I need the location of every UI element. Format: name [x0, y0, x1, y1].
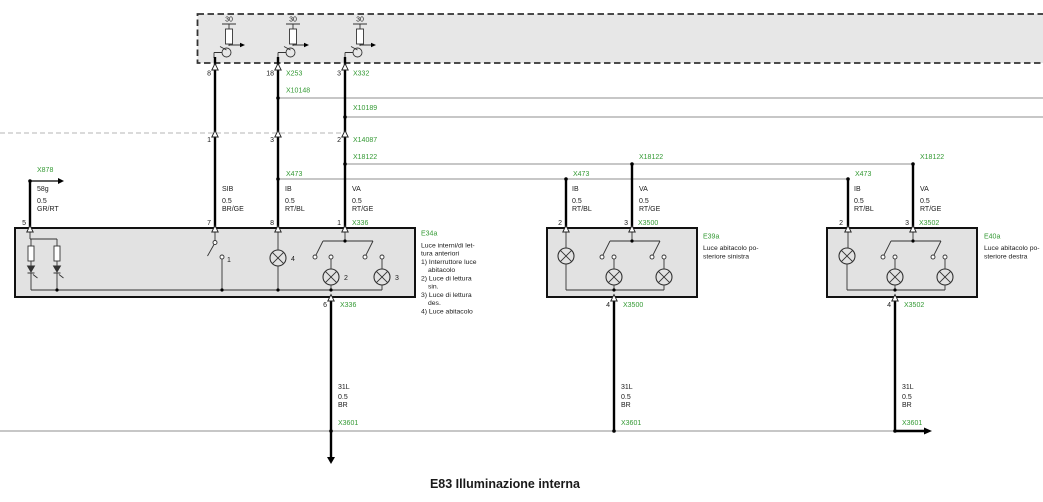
connector-label-x18122-3: X18122: [920, 154, 944, 161]
component-id-e34a: E34a: [421, 231, 437, 238]
e34a-pin-6: 6: [323, 302, 327, 309]
circuit-va: VA: [639, 186, 648, 193]
e34a-desc-line: sin.: [428, 284, 439, 291]
color-ib: RT/BL: [854, 206, 874, 213]
e40a-desc-line: steriore destra: [984, 253, 1028, 260]
e34a-pin-1: 1: [337, 220, 341, 227]
color-va: RT/GE: [639, 206, 661, 213]
fuse-1-rating: 30: [225, 17, 233, 24]
gauge-31l: 0.5: [902, 394, 912, 401]
connector-label-x10189: X10189: [353, 105, 377, 112]
connector-label-x3502-bottom: X3502: [904, 302, 924, 309]
color-31l: BR: [338, 402, 348, 409]
wire-label-58g: 58g 0.5 GR/RT: [37, 186, 59, 213]
component-id-e39a: E39a: [703, 234, 719, 241]
component-e40a-box: [827, 228, 977, 297]
circuit-ib: IB: [854, 186, 861, 193]
component-e34a-box: 1 4 2: [15, 228, 415, 297]
e40a-pin-2: 2: [839, 220, 843, 227]
connector-label-x332: X332: [353, 71, 369, 78]
e34a-desc-line: 3) Luce di lettura: [421, 292, 472, 299]
connector-label-x3500-bottom: X3500: [623, 302, 643, 309]
lamp-3-number: 3: [395, 275, 399, 282]
circuit-va: VA: [920, 186, 929, 193]
circuit-sib: SIB: [222, 186, 234, 193]
wire-label-ib-rear-right: IB 0.5 RT/BL: [854, 186, 874, 213]
color-ib: RT/BL: [572, 206, 592, 213]
gauge-58g: 0.5: [37, 198, 47, 205]
connector-label-x878: X878: [37, 167, 53, 174]
arrow-right-icon: [924, 428, 932, 435]
supply-box-outline: [198, 14, 1043, 63]
wire-label-ib-rear-left: IB 0.5 RT/BL: [572, 186, 592, 213]
e40a-pin-4: 4: [887, 302, 891, 309]
circuit-ib: IB: [285, 186, 292, 193]
e34a-pin-7: 7: [207, 220, 211, 227]
wire-label-ground-3: 31L 0.5 BR X3601: [902, 384, 922, 427]
lamp-2-number: 2: [344, 275, 348, 282]
circuit-31l: 31L: [338, 384, 350, 391]
fuse-3-rating: 30: [356, 17, 364, 24]
e34a-desc-line: Luce interni/di let-: [421, 243, 475, 250]
e39a-desc-line: steriore sinistra: [703, 253, 749, 260]
fuse-3-pin: 3: [337, 71, 341, 78]
component-e39a-box: [547, 228, 697, 297]
fuse-2-pin: 18: [266, 71, 274, 78]
connector-label-x473-3: X473: [855, 171, 871, 178]
circuit-31l: 31L: [621, 384, 633, 391]
e34a-legend: E34a Luce interni/di let- tura anteriori…: [421, 231, 477, 316]
e39a-desc-line: Luce abitacolo po-: [703, 245, 759, 252]
connector-label-x336-top: X336: [352, 220, 368, 227]
connector-label-x3601-3: X3601: [902, 420, 922, 427]
color-31l: BR: [902, 402, 912, 409]
crossing-pin-3: 2: [337, 137, 341, 144]
gauge-31l: 0.5: [621, 394, 631, 401]
component-id-e40a: E40a: [984, 234, 1000, 241]
connector-label-x18122-1: X18122: [353, 154, 377, 161]
wire-label-ib-front: IB 0.5 RT/BL: [285, 186, 305, 213]
e40a-pin-3: 3: [905, 220, 909, 227]
supply-box: 30 30 30: [198, 14, 1043, 63]
gauge-ib: 0.5: [854, 198, 864, 205]
gauge-31l: 0.5: [338, 394, 348, 401]
e34a-desc-line: 4) Luce abitacolo: [421, 308, 473, 315]
circuit-va: VA: [352, 186, 361, 193]
wire-label-va-rear-left: VA 0.5 RT/GE: [639, 186, 661, 213]
wire-label-ground-1: 31L 0.5 BR X3601: [338, 384, 358, 427]
wire-label-va-front: VA 0.5 RT/GE: [352, 186, 374, 213]
e34a-desc-line: abitacolo: [428, 267, 455, 274]
connector-label-x3500-top: X3500: [638, 220, 658, 227]
connector-label-x18122-2: X18122: [639, 154, 663, 161]
connector-label-x473-1: X473: [286, 171, 302, 178]
wiring-diagram-canvas: 30 30 30: [0, 0, 1043, 502]
connector-label-x14087: X14087: [353, 137, 377, 144]
connector-label-x3601-1: X3601: [338, 420, 358, 427]
e40a-legend: E40a Luce abitacolo po- steriore destra: [984, 234, 1040, 261]
circuit-58g: 58g: [37, 186, 49, 193]
page-title: E83 Illuminazione interna: [430, 477, 581, 491]
e39a-pin-3: 3: [624, 220, 628, 227]
connector-label-x3502-top: X3502: [919, 220, 939, 227]
color-31l: BR: [621, 402, 631, 409]
circuit-31l: 31L: [902, 384, 914, 391]
e40a-desc-line: Luce abitacolo po-: [984, 245, 1040, 252]
wire-label-sib: SIB 0.5 BR/GE: [222, 186, 244, 213]
fuse-2-rating: 30: [289, 17, 297, 24]
lamp-4-number: 4: [291, 256, 295, 263]
e34a-desc-line: 2) Luce di lettura: [421, 276, 472, 283]
e39a-legend: E39a Luce abitacolo po- steriore sinistr…: [703, 234, 759, 261]
e34a-desc-line: tura anteriori: [421, 251, 460, 258]
connector-label-x3601-2: X3601: [621, 420, 641, 427]
gauge-va: 0.5: [352, 198, 362, 205]
connector-label-x253: X253: [286, 71, 302, 78]
wiring-diagram-page: 30 30 30: [0, 0, 1043, 502]
e34a-desc-line: 1) Interruttore luce: [421, 259, 477, 266]
connector-label-x10148: X10148: [286, 88, 310, 95]
crossing-pin-1: 1: [207, 137, 211, 144]
gauge-sib: 0.5: [222, 198, 232, 205]
e39a-pin-2: 2: [558, 220, 562, 227]
fuse-1-pin: 8: [207, 71, 211, 78]
ground-icon: [327, 457, 335, 464]
circuit-ib: IB: [572, 186, 579, 193]
e34a-desc-line: des.: [428, 300, 441, 307]
e34a-pin-5: 5: [22, 220, 26, 227]
gauge-ib: 0.5: [572, 198, 582, 205]
e34a-pin-8: 8: [270, 220, 274, 227]
e39a-pin-4: 4: [606, 302, 610, 309]
arrow-right-icon: [58, 178, 64, 184]
gauge-va: 0.5: [920, 198, 930, 205]
switch-1-number: 1: [227, 257, 231, 264]
color-sib: BR/GE: [222, 206, 244, 213]
gauge-ib: 0.5: [285, 198, 295, 205]
wire-label-va-rear-right: VA 0.5 RT/GE: [920, 186, 942, 213]
color-ib: RT/BL: [285, 206, 305, 213]
wire-label-ground-2: 31L 0.5 BR X3601: [621, 384, 641, 427]
connector-label-x473-2: X473: [573, 171, 589, 178]
connector-label-x336-bottom: X336: [340, 302, 356, 309]
crossing-pin-2: 3: [270, 137, 274, 144]
gauge-va: 0.5: [639, 198, 649, 205]
color-58g: GR/RT: [37, 206, 59, 213]
color-va: RT/GE: [920, 206, 942, 213]
color-va: RT/GE: [352, 206, 374, 213]
